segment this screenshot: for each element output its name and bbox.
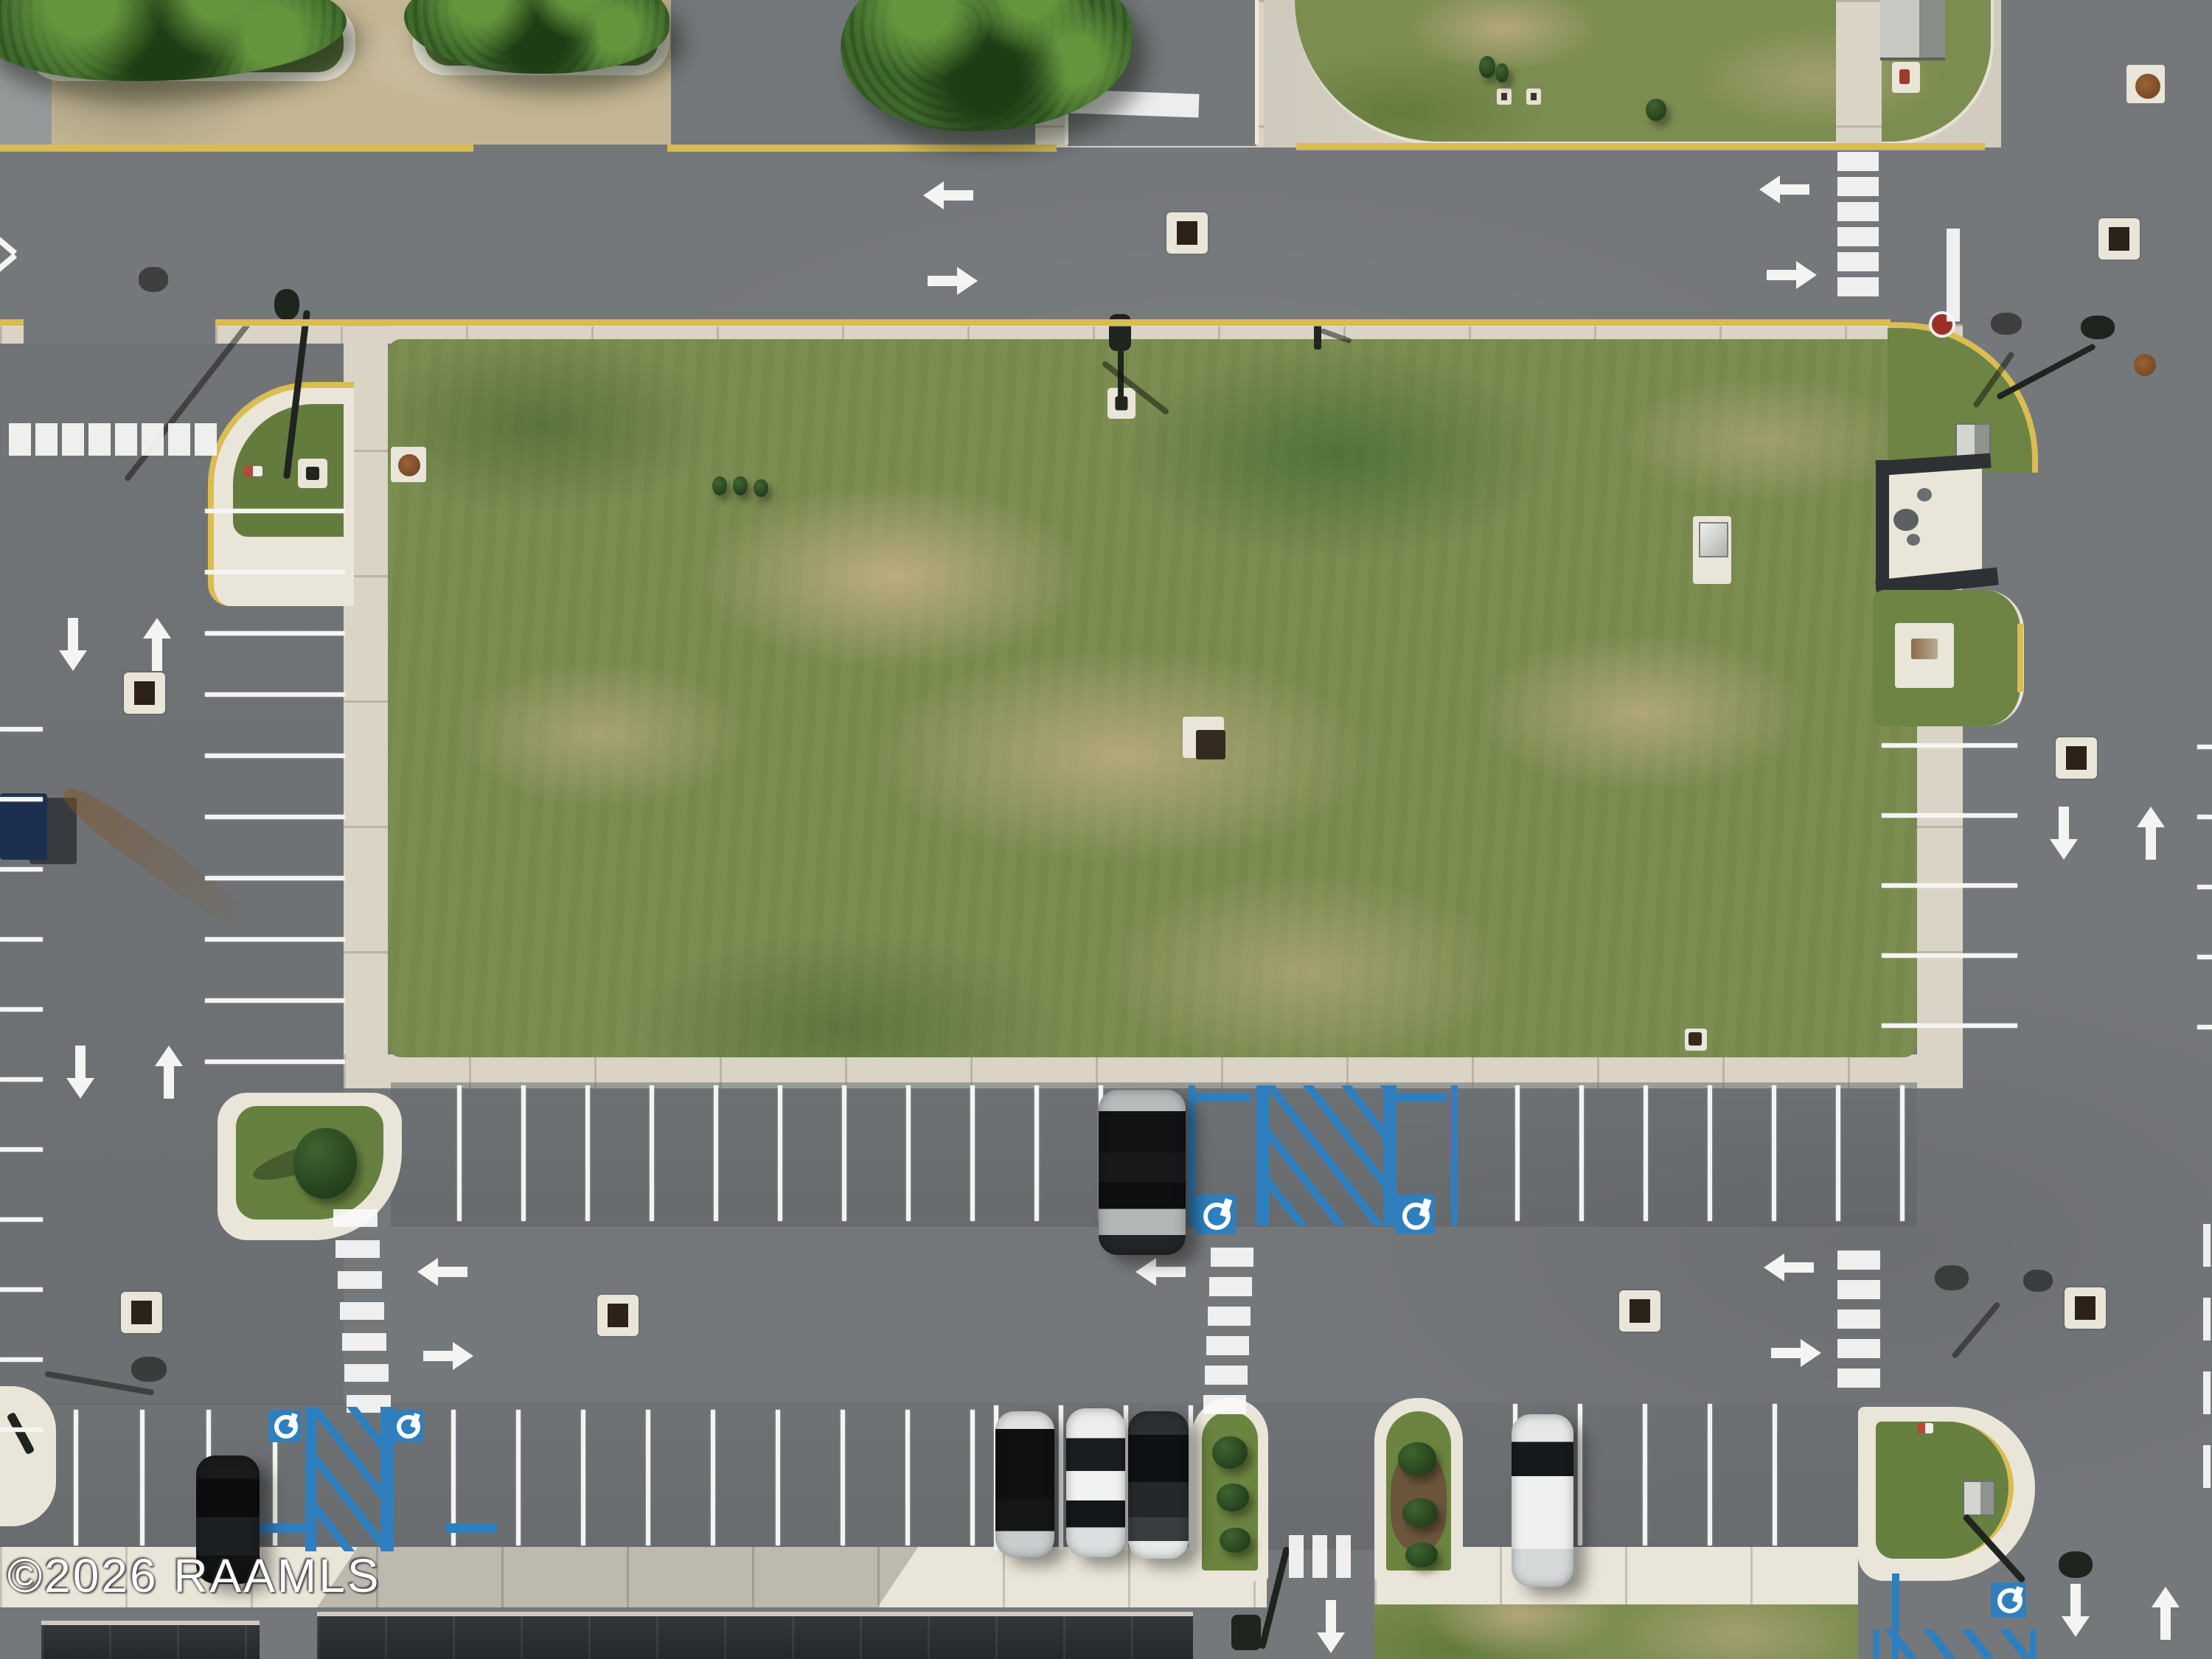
shrub [1495, 63, 1509, 83]
objects-layer [0, 0, 2212, 1659]
shrub [712, 476, 727, 495]
shrub [754, 479, 768, 497]
shrub [1217, 1484, 1249, 1512]
shrub [1402, 1498, 1438, 1528]
aerial-photo-canvas: ©2026 RAAMLS [0, 0, 2212, 1659]
black-sedan-middle-row [1099, 1090, 1186, 1255]
shrub [1405, 1543, 1438, 1568]
shrub [1220, 1528, 1251, 1553]
white-suv-bottom-right [1512, 1414, 1573, 1587]
shrub [1398, 1442, 1436, 1476]
shrub [1479, 56, 1495, 78]
white-car-bottom-center [1066, 1408, 1125, 1557]
shrub [1212, 1436, 1248, 1469]
mls-watermark: ©2026 RAAMLS [7, 1548, 381, 1603]
shrub [293, 1128, 357, 1199]
black-car-bottom-center [995, 1411, 1054, 1557]
shrub [733, 476, 748, 495]
shrub [1646, 99, 1666, 121]
gray-car-bottom-center [1128, 1411, 1189, 1559]
